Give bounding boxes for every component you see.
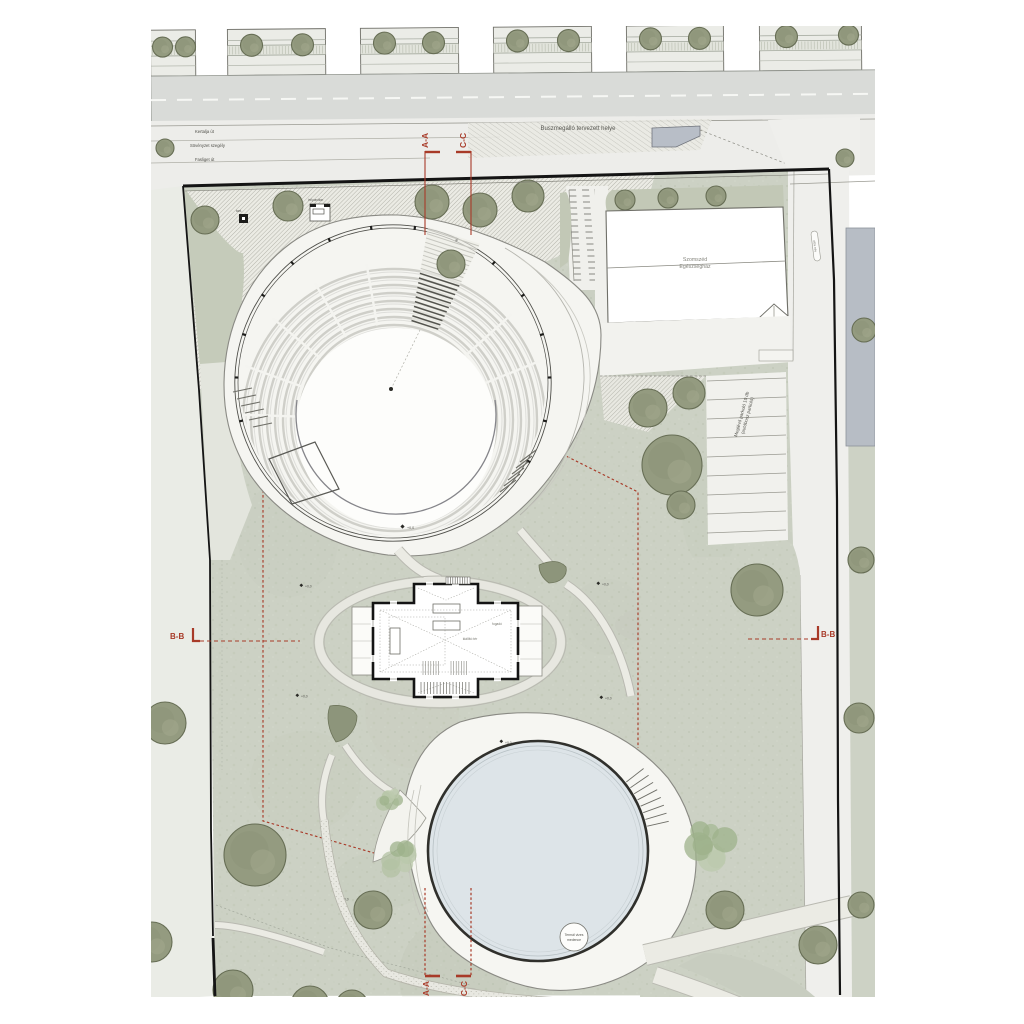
- svg-text:C-C: C-C: [459, 981, 469, 996]
- svg-text:Egészségház: Egészségház: [679, 264, 711, 270]
- svg-text:inf.pavilon: inf.pavilon: [308, 198, 323, 202]
- svg-text:tart.: tart.: [236, 209, 242, 213]
- svg-text:A-A: A-A: [421, 981, 431, 996]
- svg-text:+0,0: +0,0: [407, 526, 414, 530]
- svg-text:fogadó: fogadó: [492, 622, 502, 626]
- svg-text:Termál vizes: Termál vizes: [565, 933, 584, 937]
- svg-text:Fasliget út: Fasliget út: [195, 157, 215, 162]
- svg-text:B-B: B-B: [821, 630, 835, 639]
- svg-text:+0,0: +0,0: [505, 741, 512, 745]
- svg-text:+0,0: +0,0: [305, 585, 312, 589]
- svg-text:Szomszéd: Szomszéd: [683, 257, 707, 263]
- svg-text:medence: medence: [567, 938, 581, 942]
- svg-text:B-B: B-B: [170, 632, 184, 641]
- svg-text:+0,0: +0,0: [605, 697, 612, 701]
- svg-text:Sövényzet szegély: Sövényzet szegély: [190, 143, 226, 148]
- svg-text:Kertalja út: Kertalja út: [195, 129, 215, 134]
- svg-text:Buszmegálló tervezett helye: Buszmegálló tervezett helye: [540, 126, 616, 132]
- svg-text:+0,0: +0,0: [602, 583, 609, 587]
- svg-text:+0,0: +0,0: [301, 695, 308, 699]
- svg-text:C-C: C-C: [458, 133, 468, 148]
- svg-text:kiállító tér: kiállító tér: [463, 637, 478, 641]
- svg-text:A-A: A-A: [420, 133, 430, 148]
